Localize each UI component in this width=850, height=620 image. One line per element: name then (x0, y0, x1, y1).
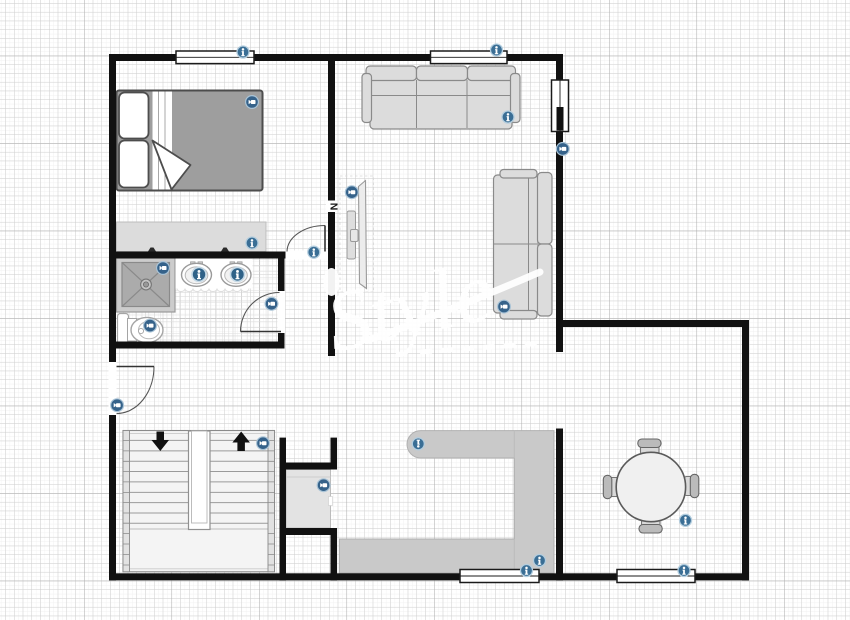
svg-text:N: N (328, 203, 340, 211)
